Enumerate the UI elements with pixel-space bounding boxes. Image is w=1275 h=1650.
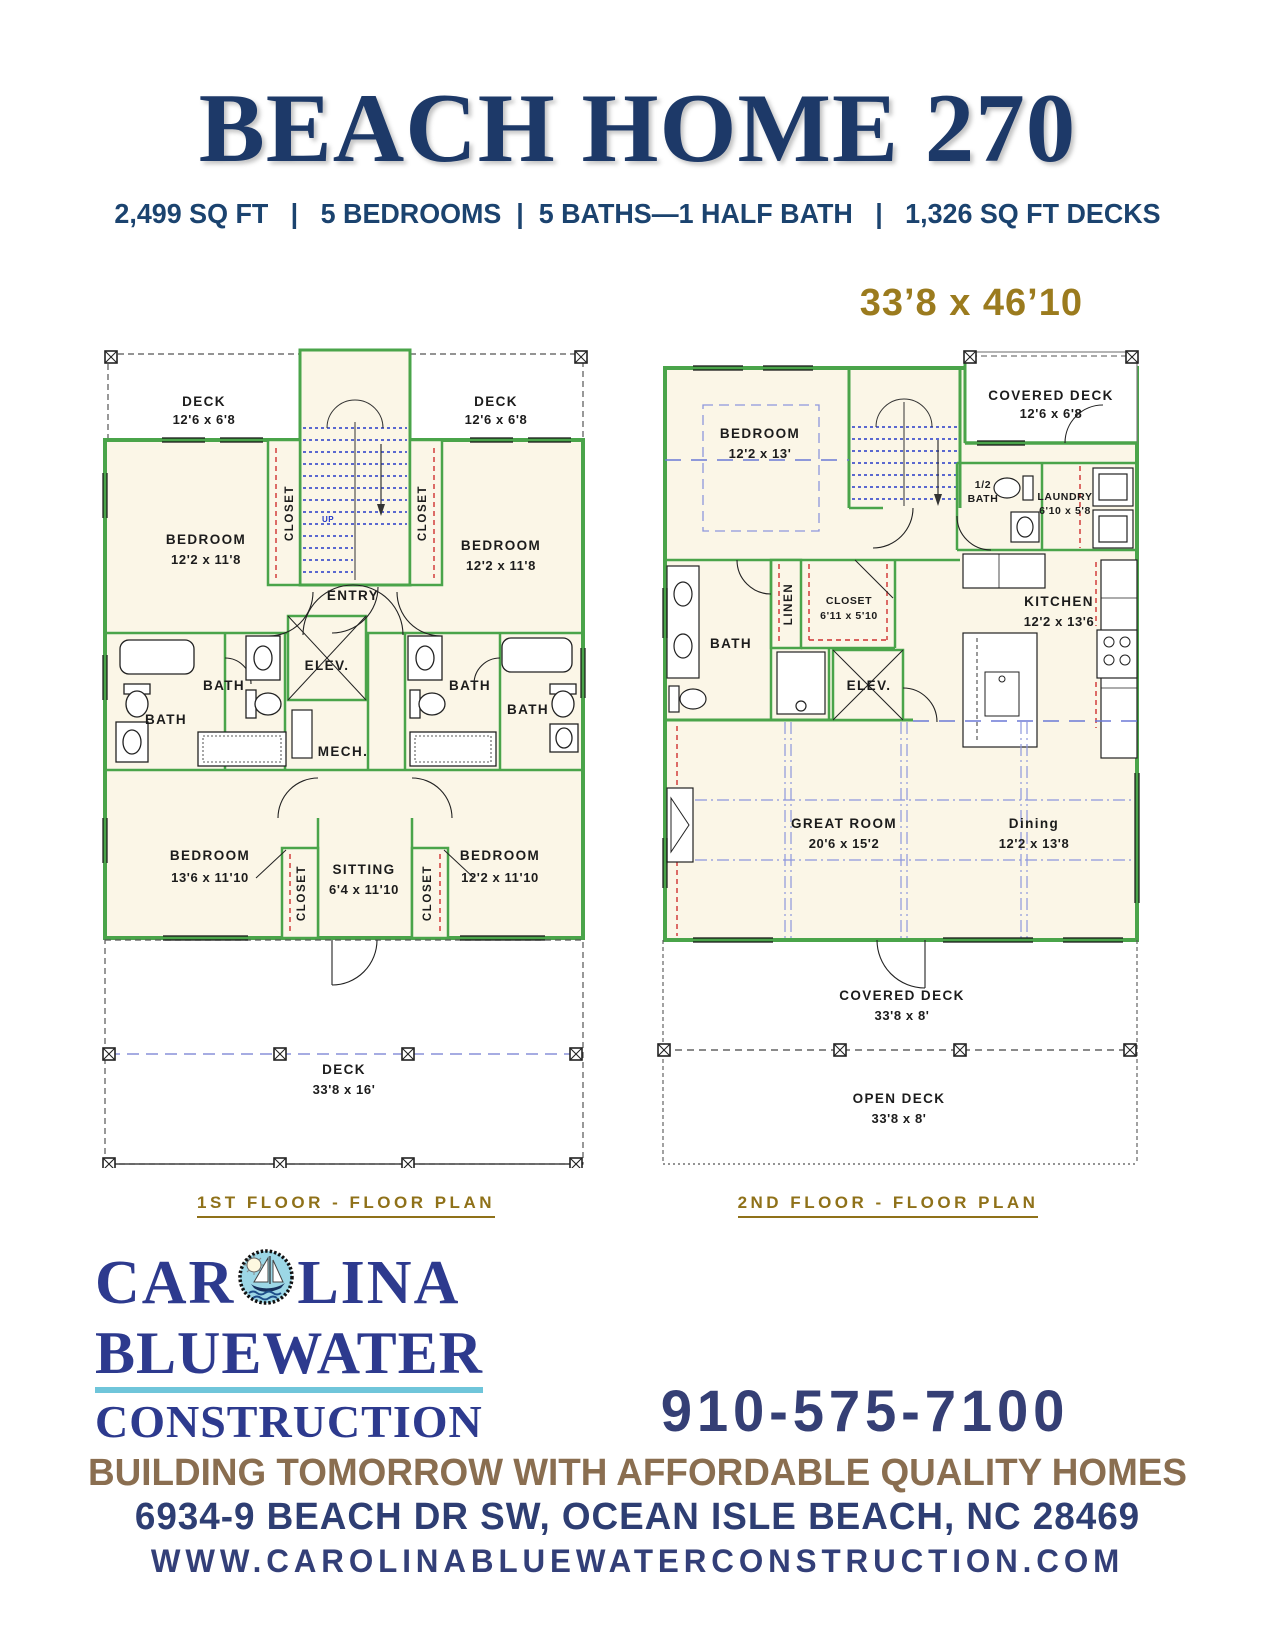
svg-text:33'8 x 8': 33'8 x 8' [872, 1111, 927, 1126]
logo-line-bluewater: BLUEWATER [95, 1323, 575, 1393]
phone-number: 910-575-7100 [608, 1378, 1122, 1445]
svg-text:BATH: BATH [710, 636, 752, 651]
plan2-caption: 2ND FLOOR - FLOOR PLAN [633, 1193, 1143, 1218]
svg-text:BATH: BATH [507, 702, 549, 717]
logo-text-lina: LINA [297, 1252, 460, 1314]
svg-text:BEDROOM: BEDROOM [461, 538, 541, 553]
svg-text:BEDROOM: BEDROOM [720, 426, 800, 441]
stairs: UP [300, 350, 410, 585]
shower-icon [777, 652, 825, 714]
svg-text:CLOSET: CLOSET [417, 485, 429, 541]
flyer-page: { "page": { "title": "BEACH HOME 270", "… [0, 0, 1275, 1650]
bathtub-icon [502, 638, 572, 672]
svg-text:OPEN DECK: OPEN DECK [853, 1091, 946, 1106]
svg-text:33'8 x 8': 33'8 x 8' [875, 1008, 930, 1023]
stats-line: 2,499 SQ FT | 5 BEDROOMS | 5 BATHS—1 HAL… [26, 198, 1250, 230]
svg-text:BATH: BATH [145, 712, 187, 727]
svg-text:MECH.: MECH. [318, 744, 369, 759]
svg-text:BATH: BATH [203, 678, 245, 693]
svg-text:CLOSET: CLOSET [826, 595, 872, 607]
sun-sailboat-badge-icon [237, 1248, 295, 1317]
floor-plan-1: UP CLOSET CLOSET CLOSET CLOSET [100, 348, 592, 1168]
svg-text:CLOSET: CLOSET [422, 865, 434, 921]
stairs-up-label: UP [322, 515, 334, 524]
svg-text:DECK: DECK [182, 394, 226, 409]
svg-text:6'11 x 5'10: 6'11 x 5'10 [820, 610, 878, 622]
svg-text:12'2 x 11'10: 12'2 x 11'10 [461, 870, 539, 885]
svg-text:COVERED DECK: COVERED DECK [988, 388, 1114, 403]
covered-deck-bottom [658, 940, 1137, 1164]
kitchen-sink-icon [985, 672, 1019, 716]
floor-plan-2: LINEN [633, 348, 1143, 1168]
svg-text:DECK: DECK [474, 394, 518, 409]
svg-text:BATH: BATH [449, 678, 491, 693]
svg-text:GREAT ROOM: GREAT ROOM [791, 816, 897, 831]
logo-text-car: CAR [95, 1252, 235, 1314]
closet-top-left: CLOSET [268, 440, 300, 585]
floor-plan-1-drawing: UP CLOSET CLOSET CLOSET CLOSET [100, 348, 592, 1168]
svg-text:ELEV.: ELEV. [305, 658, 350, 673]
svg-text:12'6 x 6'8: 12'6 x 6'8 [173, 412, 236, 427]
water-heater-icon [292, 710, 312, 758]
closet-top-right: CLOSET [410, 440, 442, 585]
svg-text:12'2 x 13'8: 12'2 x 13'8 [999, 836, 1070, 851]
svg-text:LINEN: LINEN [783, 583, 795, 626]
svg-text:KITCHEN: KITCHEN [1024, 594, 1094, 609]
svg-text:BEDROOM: BEDROOM [166, 532, 246, 547]
svg-text:CLOSET: CLOSET [296, 865, 308, 921]
svg-text:12'6 x 6'8: 12'6 x 6'8 [465, 412, 528, 427]
svg-text:BATH: BATH [968, 493, 999, 505]
toilet-icon [1023, 476, 1033, 500]
toilet-icon [669, 686, 679, 712]
svg-text:SITTING: SITTING [332, 862, 395, 877]
bathtub-icon [120, 640, 194, 674]
svg-text:6'4 x 11'10: 6'4 x 11'10 [329, 882, 399, 897]
svg-text:LAUNDRY: LAUNDRY [1037, 491, 1092, 503]
page-title: BEACH HOME 270 [0, 72, 1275, 185]
kitchen-counter [963, 554, 1045, 588]
svg-text:BEDROOM: BEDROOM [170, 848, 250, 863]
svg-text:12'2 x 13': 12'2 x 13' [729, 446, 792, 461]
svg-text:12'2 x 11'8: 12'2 x 11'8 [466, 558, 536, 573]
svg-text:6'10 x 5'8: 6'10 x 5'8 [1039, 505, 1091, 517]
company-logo: CAR LINA BLUEWATER CONSTRUCTION [95, 1248, 575, 1445]
stove-icon [1097, 630, 1137, 678]
svg-text:12'6 x 6'8: 12'6 x 6'8 [1020, 406, 1083, 421]
floor-plan-2-drawing: LINEN [633, 348, 1143, 1168]
logo-line-construction: CONSTRUCTION [95, 1399, 575, 1445]
svg-text:Dining: Dining [1009, 816, 1059, 831]
svg-text:DECK: DECK [322, 1062, 366, 1077]
svg-text:12'2 x 11'8: 12'2 x 11'8 [171, 552, 241, 567]
svg-text:ELEV.: ELEV. [847, 678, 892, 693]
company-address: 6934-9 BEACH DR SW, OCEAN ISLE BEACH, NC… [19, 1496, 1256, 1539]
svg-text:1/2: 1/2 [975, 479, 991, 491]
overall-dimensions: 33’8 x 46’10 [633, 282, 1083, 325]
svg-text:33'8 x 16': 33'8 x 16' [313, 1082, 376, 1097]
svg-text:BEDROOM: BEDROOM [460, 848, 540, 863]
svg-text:20'6 x 15'2: 20'6 x 15'2 [809, 836, 880, 851]
company-slogan: BUILDING TOMORROW WITH AFFORDABLE QUALIT… [19, 1452, 1256, 1495]
svg-text:COVERED DECK: COVERED DECK [839, 988, 965, 1003]
company-website: WWW.CAROLINABLUEWATERCONSTRUCTION.COM [13, 1543, 1263, 1580]
plan1-caption: 1ST FLOOR - FLOOR PLAN [100, 1193, 592, 1218]
deck-bottom [103, 940, 583, 1168]
svg-text:12'2 x 13'6: 12'2 x 13'6 [1024, 614, 1095, 629]
logo-line-carolina: CAR LINA [95, 1248, 575, 1317]
svg-text:CLOSET: CLOSET [284, 485, 296, 541]
svg-text:ENTRY: ENTRY [327, 588, 379, 603]
svg-text:13'6 x 11'10: 13'6 x 11'10 [171, 870, 249, 885]
